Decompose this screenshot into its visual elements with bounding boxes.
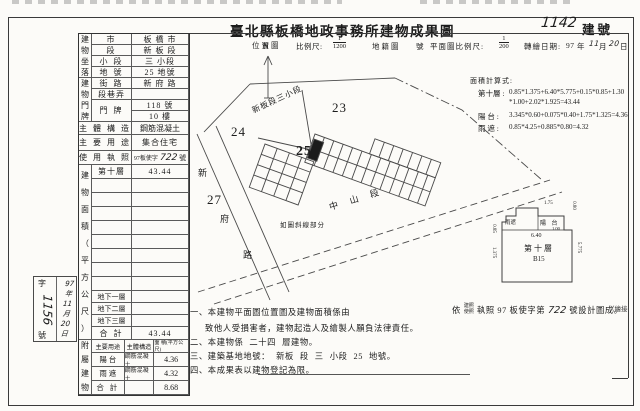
parcel-label-24: 24 bbox=[231, 124, 246, 140]
usage-label: 主 要 用 途 bbox=[79, 135, 132, 151]
area-b2-label: 地下二層 bbox=[92, 303, 132, 315]
annex-canopy-area: 4.32 bbox=[154, 367, 188, 380]
annex-header-row: 主要用途 主體構造 面 積(平方公尺) bbox=[92, 340, 189, 353]
annex-balcony-structure: 鋼筋混凝土 bbox=[125, 353, 155, 366]
row-street-label: 街 路 bbox=[92, 78, 132, 89]
note-3-lot-number: 25 bbox=[353, 352, 363, 361]
area-empty-cell bbox=[132, 263, 189, 277]
floorplan-canopy-label: 雨遮 bbox=[505, 218, 516, 226]
area-empty-cell bbox=[132, 207, 189, 221]
note-1-start: 一、本建物平面圖位置圖及建物面積係由 bbox=[190, 306, 350, 318]
license-number: 722 bbox=[159, 153, 177, 163]
row-lot-label: 地 號 bbox=[92, 67, 132, 78]
note-3-end: 地號。 bbox=[369, 350, 396, 362]
note-3-small-section: 三 bbox=[315, 350, 324, 362]
area-empty-cell bbox=[132, 277, 189, 291]
area-b1-value bbox=[132, 291, 189, 303]
annex-group-header: 附 屬 建 物 bbox=[79, 340, 92, 395]
annex-col3-header: 面 積(平方公尺) bbox=[154, 340, 188, 352]
floorplan-dim-1375: 1.375 bbox=[491, 247, 496, 258]
annex-canopy-structure: 鋼筋混凝土 bbox=[125, 367, 155, 380]
area-empty-cell bbox=[92, 179, 132, 193]
area-empty-cell bbox=[132, 249, 189, 263]
area-empty-cell bbox=[92, 277, 132, 291]
structure-value: 鋼筋混凝土 bbox=[132, 122, 189, 135]
annex-row-canopy: 雨 遮 鋼筋混凝土 4.32 bbox=[92, 367, 189, 381]
area-empty-cell bbox=[92, 249, 132, 263]
floorplan-unit-label: B15 bbox=[533, 255, 545, 263]
stamp-prefix: 字 bbox=[38, 278, 46, 289]
hatch-note-label: 如圖斜線部分 bbox=[280, 219, 325, 229]
note-1-permit-clause: 依 建照 使照 執照 97 板使字第 722 號設計圖成。 bbox=[452, 304, 623, 316]
continuation-mark: （繪接 bbox=[608, 303, 628, 313]
xinfu-road-char-2: 府 bbox=[220, 212, 229, 225]
row-street-value: 新 府 路 bbox=[132, 78, 189, 89]
license-value: 97板使字 722 號 bbox=[132, 151, 189, 165]
license-prefix: 97板使字 bbox=[134, 153, 158, 162]
annex-canopy-use: 雨 遮 bbox=[92, 367, 125, 380]
top-cutoff-fragment-2 bbox=[420, 0, 570, 4]
note-3-section: 新板 bbox=[276, 350, 294, 362]
north-arrow-icon bbox=[264, 56, 272, 98]
area-b1-label: 地下一層 bbox=[92, 291, 132, 303]
note-1-mid: 執照 97 板使字第 bbox=[477, 304, 545, 316]
stamp-number: 1156 bbox=[40, 294, 54, 326]
parcel-label-23: 23 bbox=[332, 100, 347, 116]
parcel-boundary-top bbox=[250, 78, 395, 84]
parcel-label-27: 27 bbox=[207, 192, 222, 208]
stamp-suffix: 號 bbox=[38, 330, 46, 341]
row-lane-label: 段巷弄 bbox=[92, 89, 132, 100]
usage-value: 集合住宅 bbox=[132, 135, 189, 151]
row-subsection-label: 小 段 bbox=[92, 56, 132, 67]
annex-row-balcony: 陽 台 鋼筋混凝土 4.36 bbox=[92, 353, 189, 367]
xinfu-road-edge-west bbox=[197, 134, 270, 300]
parcel-label-25: 25 bbox=[296, 144, 312, 160]
row-lot-value: 25 地號 bbox=[132, 67, 189, 78]
floorplan-dim-640: 6.40 bbox=[531, 233, 542, 239]
location-group-header: 建 物 坐 落 bbox=[79, 34, 92, 78]
parcel-boundary-right bbox=[395, 78, 542, 180]
structure-label: 主 體 構 造 bbox=[79, 122, 132, 135]
row-city-value: 板 橋 市 bbox=[132, 34, 189, 45]
floorplan-floor-label: 第十層 bbox=[524, 243, 554, 254]
area-empty-cell bbox=[92, 235, 132, 249]
area-b3-label: 地下三層 bbox=[92, 315, 132, 327]
note-4: 四、本成果表以建物登記為限。 bbox=[190, 364, 315, 376]
annex-total-row: 合 計 8.68 bbox=[92, 381, 189, 395]
note-2-start: 二、本建物係 bbox=[190, 336, 243, 348]
area-group-header: 建 物 面 積 （ 平 方 公 尺 ） bbox=[79, 165, 92, 340]
note-2-floors: 二十四 bbox=[249, 336, 276, 348]
area-b2-value bbox=[132, 303, 189, 315]
floorplan-dim-5775: 5.775 bbox=[576, 242, 581, 253]
annex-total-value: 8.68 bbox=[154, 381, 188, 394]
note-3: 三、建築基地地號： 新板 段 三 小段 25 地號。 bbox=[190, 350, 396, 362]
floorplan-dim-175: 1.75 bbox=[544, 201, 553, 206]
note-3-start: 三、建築基地地號： bbox=[190, 350, 270, 362]
note-2-end: 層建物。 bbox=[282, 336, 318, 348]
row-city-label: 市 bbox=[92, 34, 132, 45]
xinfu-road-char-3: 路 bbox=[243, 248, 252, 261]
row-door-value-1: 118 號 bbox=[132, 100, 189, 111]
row-lane-value bbox=[132, 89, 189, 100]
area-empty-cell bbox=[92, 207, 132, 221]
stamp-date: 97 年 11 月 20 日 bbox=[55, 279, 79, 339]
xinfu-road-edge-east bbox=[216, 126, 289, 292]
note-1-line-2: 致他人受損害者，建物起造人及繪製人願負法律責任。 bbox=[205, 322, 419, 334]
note-3-mid-2: 小段 bbox=[330, 350, 348, 362]
area-empty-cell bbox=[92, 221, 132, 235]
receipt-stamp: 字 1156 號 97 年 11 月 20 日 bbox=[33, 276, 77, 342]
scanned-document: 臺北縣板橋地政事務所建物成果圖 1142 建號 建 物 坐 落 市 板 橋 市 … bbox=[0, 0, 640, 411]
content-right-foot-line bbox=[612, 378, 628, 379]
address-group-header: 建 物 門 牌 bbox=[79, 78, 92, 122]
top-cutoff-fragment bbox=[12, 0, 342, 4]
annex-balcony-area: 4.36 bbox=[154, 353, 188, 366]
floorplan-dim-100: 1.00 bbox=[552, 226, 560, 231]
note-1-use-permit: 使照 bbox=[464, 310, 474, 316]
annex-total-label: 合 計 bbox=[92, 381, 125, 394]
building-number-value: 1142 bbox=[540, 15, 577, 31]
area-empty-cell bbox=[132, 221, 189, 235]
license-suffix: 號 bbox=[179, 153, 186, 163]
row-door-label: 門 牌 bbox=[92, 100, 132, 122]
compass-n-label: N bbox=[263, 42, 269, 51]
area-floor-label: 第十層 bbox=[92, 165, 132, 179]
row-section-label: 段 bbox=[92, 45, 132, 56]
area-empty-cell bbox=[92, 263, 132, 277]
building-info-table: 建 物 坐 落 市 板 橋 市 段 新 板 段 小 段 三 小段 地 號 25 … bbox=[78, 33, 190, 396]
annex-balcony-use: 陽 台 bbox=[92, 353, 125, 366]
row-subsection-value: 三 小段 bbox=[132, 56, 189, 67]
area-empty-cell bbox=[92, 193, 132, 207]
row-section-value: 新 板 段 bbox=[132, 45, 189, 56]
row-door-value-2: 10 樓 bbox=[132, 111, 189, 122]
area-empty-cell bbox=[132, 235, 189, 249]
parcel-divider-23-24 bbox=[302, 90, 312, 150]
area-floor-value: 43.44 bbox=[132, 165, 189, 179]
floorplan-dim-085: 0.85 bbox=[491, 224, 496, 233]
license-label: 使 用 執 照 bbox=[79, 151, 132, 165]
annex-col1-header: 主要用途 bbox=[92, 340, 125, 352]
floorplan-dim-080: 0.80 bbox=[571, 201, 576, 210]
area-b3-value bbox=[132, 315, 189, 327]
note-2: 二、本建物係 二十四 層建物。 bbox=[190, 336, 318, 348]
area-empty-cell bbox=[132, 193, 189, 207]
annex-col2-header: 主體構造 bbox=[125, 340, 155, 352]
note-1-yi: 依 bbox=[452, 304, 461, 316]
area-empty-cell bbox=[132, 179, 189, 193]
note-1-permit-stack: 建照 使照 bbox=[464, 304, 474, 316]
annex-total-blank bbox=[125, 381, 155, 394]
area-total-label: 合 計 bbox=[92, 327, 132, 340]
area-total-value: 43.44 bbox=[132, 327, 189, 340]
xinfu-road-char-1: 新 bbox=[198, 166, 207, 179]
note-3-mid-1: 段 bbox=[300, 350, 309, 362]
note-1-license-number: 722 bbox=[548, 305, 567, 316]
